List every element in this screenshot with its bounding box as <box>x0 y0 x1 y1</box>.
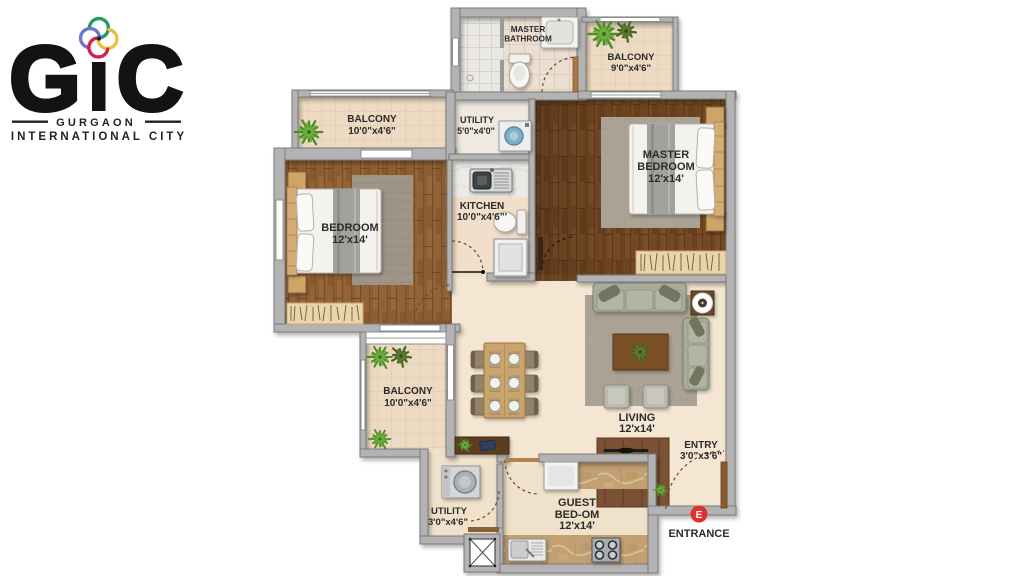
svg-text:5'0"x4'0": 5'0"x4'0" <box>457 126 495 136</box>
svg-text:12'x14': 12'x14' <box>332 234 368 246</box>
svg-text:12'x14': 12'x14' <box>619 423 655 435</box>
svg-text:GURGAON: GURGAON <box>56 117 136 129</box>
svg-text:KITCHEN: KITCHEN <box>460 201 504 212</box>
svg-text:BALCONY: BALCONY <box>383 386 433 397</box>
svg-text:MASTER: MASTER <box>511 25 546 34</box>
svg-text:UTILITY: UTILITY <box>431 506 468 517</box>
svg-text:9'0"x4'6": 9'0"x4'6" <box>611 63 651 74</box>
svg-text:BEDROOM: BEDROOM <box>321 222 378 234</box>
svg-text:INTERNATIONAL CITY: INTERNATIONAL CITY <box>11 131 187 143</box>
svg-text:BALCONY: BALCONY <box>347 114 397 125</box>
svg-text:C: C <box>117 28 183 130</box>
svg-text:BATHROOM: BATHROOM <box>504 35 552 44</box>
svg-text:E: E <box>696 510 703 521</box>
svg-text:BALCONY: BALCONY <box>608 52 656 63</box>
svg-text:10'0"x4'6"': 10'0"x4'6"' <box>457 212 507 223</box>
svg-text:12'x14': 12'x14' <box>648 173 684 185</box>
svg-text:GUEST: GUEST <box>558 497 596 509</box>
svg-text:BEDROOM: BEDROOM <box>637 161 694 173</box>
svg-text:ENTRANCE: ENTRANCE <box>668 528 729 540</box>
svg-text:ENTRY: ENTRY <box>684 440 718 451</box>
svg-text:G: G <box>9 28 81 130</box>
svg-text:10'0"x4'6": 10'0"x4'6" <box>348 126 396 137</box>
svg-text:3'0"x4'6": 3'0"x4'6" <box>428 517 468 528</box>
svg-text:12'x14': 12'x14' <box>559 520 595 532</box>
svg-text:MASTER: MASTER <box>643 149 690 161</box>
svg-text:UTILITY: UTILITY <box>460 115 494 125</box>
svg-text:10'0"x4'6": 10'0"x4'6" <box>384 398 432 409</box>
svg-text:3'0"x3'6": 3'0"x3'6" <box>680 451 722 462</box>
